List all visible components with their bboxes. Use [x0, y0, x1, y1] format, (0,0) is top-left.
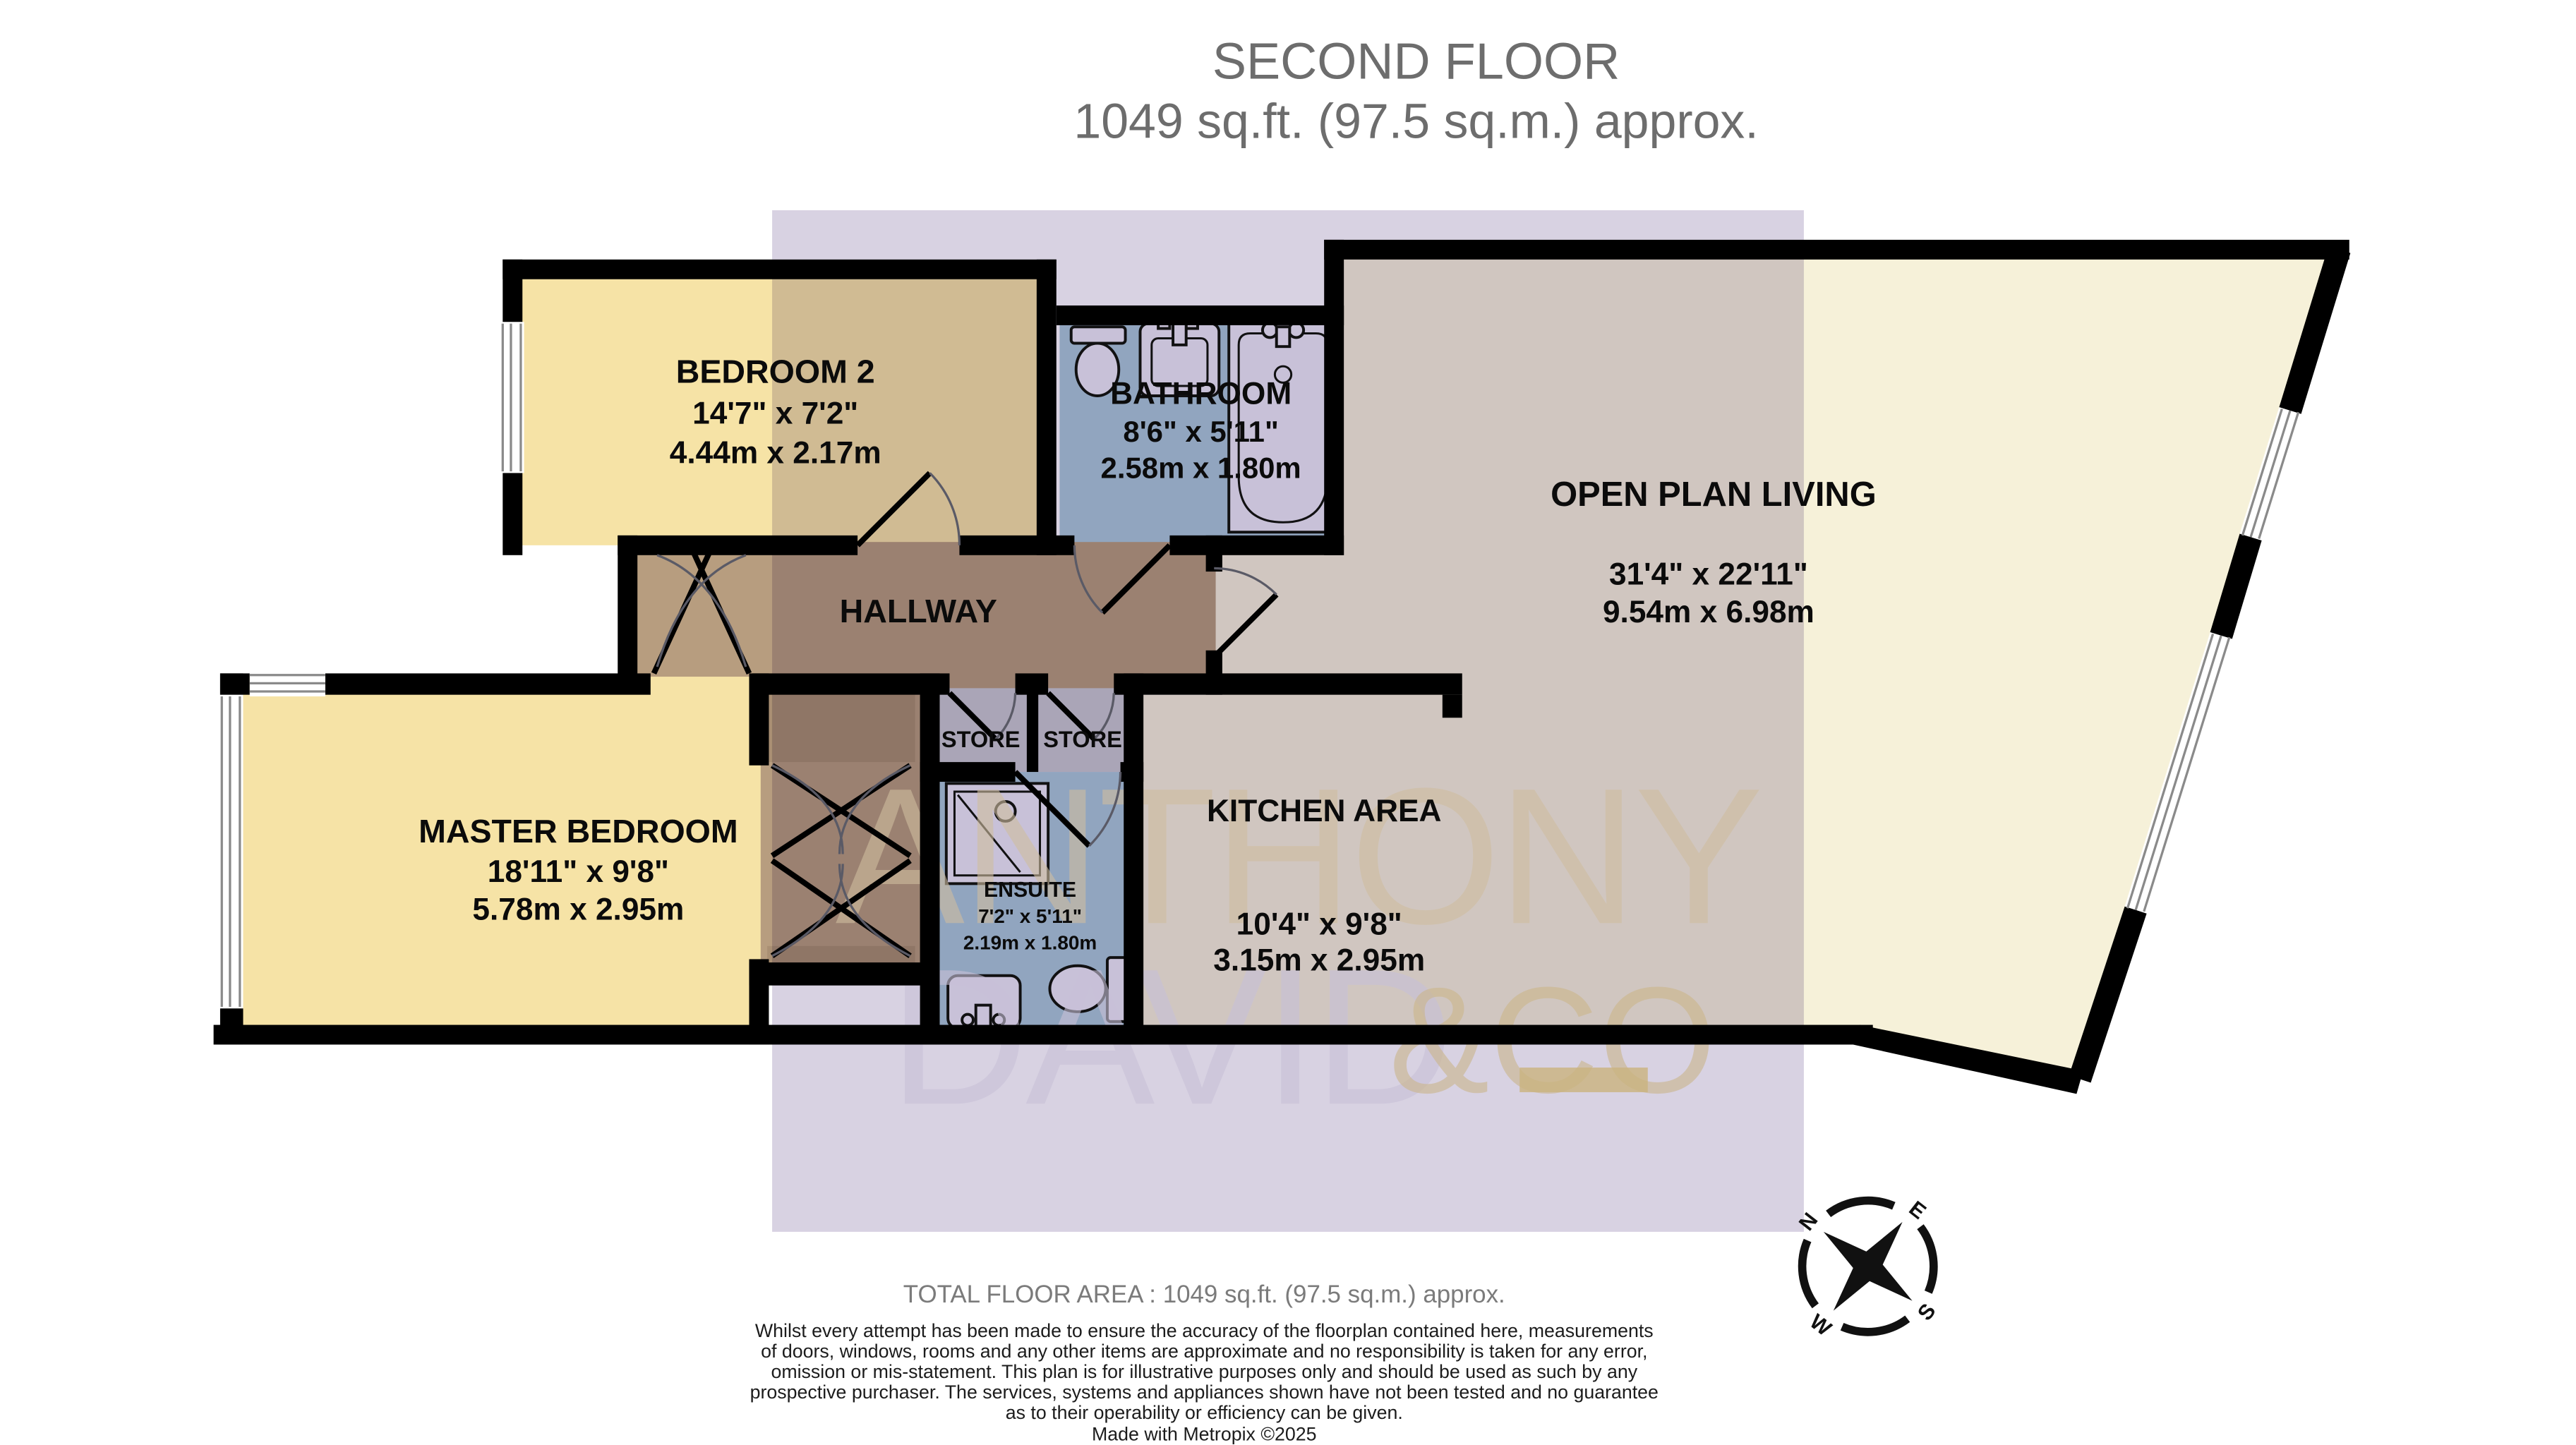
openplan-metric: 9.54m x 6.98m: [1603, 595, 1814, 629]
wall-livdoor-stub-top: [1206, 536, 1222, 572]
wall-master-corner-tl: [220, 673, 243, 698]
wall-h4-c: [1169, 536, 1344, 555]
bathroom-metric: 2.58m x 1.80m: [1101, 451, 1301, 484]
master-name: MASTER BEDROOM: [419, 813, 738, 850]
compass-w: W: [1805, 1310, 1836, 1341]
title-block: SECOND FLOOR 1049 sq.ft. (97.5 sq.m.) ap…: [1073, 34, 1758, 149]
bedroom2-imperial: 14'7" x 7'2": [692, 397, 858, 431]
wall-passage-bottom: [749, 962, 929, 986]
wall-bedroom2-left-upper: [502, 260, 522, 325]
ensuite-name: ENSUITE: [984, 878, 1076, 902]
page-subtitle: 1049 sq.ft. (97.5 sq.m.) approx.: [1073, 94, 1758, 149]
bathroom-name: BATHROOM: [1110, 377, 1292, 411]
wall-living-left: [1324, 240, 1344, 555]
kitchen-name: KITCHEN AREA: [1207, 794, 1441, 828]
wall-bedroom2-left-lower: [502, 470, 522, 555]
wall-master-right-upper: [749, 673, 769, 765]
floorplan-page: ANTHONY DAVID &CO: [0, 0, 2576, 1445]
wall-h4-b: [959, 536, 1074, 555]
page-title: SECOND FLOOR: [1212, 34, 1620, 90]
wall-h4-a: [618, 536, 857, 555]
disclaimer-line-1: Whilst every attempt has been made to en…: [755, 1320, 1654, 1341]
wall-bottom: [214, 1025, 1873, 1045]
wall-h7-b: [325, 673, 651, 694]
wall-store-divider: [1027, 682, 1038, 772]
disclaimer-line-4: prospective purchaser. The services, sys…: [750, 1381, 1659, 1403]
compass-s: S: [1913, 1300, 1940, 1325]
disclaimer-line-2: of doors, windows, rooms and any other i…: [761, 1341, 1647, 1362]
wall-ensuite-top-a: [920, 762, 1016, 782]
disclaimer-line-5: as to their operability or efficiency ca…: [1006, 1402, 1403, 1423]
master-imperial: 18'11" x 9'8": [488, 854, 669, 889]
wall-bedroom2-top: [502, 260, 1056, 279]
ensuite-imperial: 7'2" x 5'11": [978, 905, 1082, 927]
kitchen-metric: 3.15m x 2.95m: [1213, 943, 1425, 978]
wall-living-top: [1324, 240, 2349, 260]
openplan-imperial: 31'4" x 22'11": [1609, 557, 1808, 592]
kitchen-imperial: 10'4" x 9'8": [1236, 907, 1402, 942]
footer-block: TOTAL FLOOR AREA : 1049 sq.ft. (97.5 sq.…: [750, 1281, 1659, 1445]
hallway-name: HALLWAY: [840, 593, 997, 629]
master-metric: 5.78m x 2.95m: [472, 893, 684, 927]
wall-kitchen-stub: [1443, 695, 1462, 718]
store1-name: STORE: [941, 727, 1021, 752]
metropix-credit: Made with Metropix ©2025: [1092, 1423, 1317, 1444]
wall-h5-c: [1114, 673, 1462, 694]
total-floor-area: TOTAL FLOOR AREA : 1049 sq.ft. (97.5 sq.…: [903, 1281, 1505, 1308]
wall-ensuite-left: [920, 673, 940, 1044]
compass-star-icon: [1824, 1222, 1913, 1311]
ensuite-metric: 2.19m x 1.80m: [963, 931, 1097, 953]
wall-ensuite-top-b: [1121, 762, 1144, 782]
bedroom2-name: BEDROOM 2: [676, 353, 875, 389]
wall-bedroom2-right: [1037, 260, 1057, 555]
wall-livdoor-stub-bottom: [1206, 651, 1222, 695]
disclaimer-line-3: omission or mis-statement. This plan is …: [771, 1361, 1637, 1382]
bedroom2-metric: 4.44m x 2.17m: [670, 435, 881, 470]
compass-e: E: [1905, 1197, 1930, 1223]
floorplan-canvas: ANTHONY DAVID &CO: [0, 0, 2576, 1445]
wall-bathroom-top: [1057, 306, 1344, 325]
store2-name: STORE: [1043, 727, 1122, 752]
openplan-name: OPEN PLAN LIVING: [1551, 476, 1877, 514]
wall-hallway-left: [618, 536, 637, 693]
wall-ensuite-right: [1124, 673, 1143, 1044]
bathroom-imperial: 8'6" x 5'11": [1123, 415, 1278, 448]
